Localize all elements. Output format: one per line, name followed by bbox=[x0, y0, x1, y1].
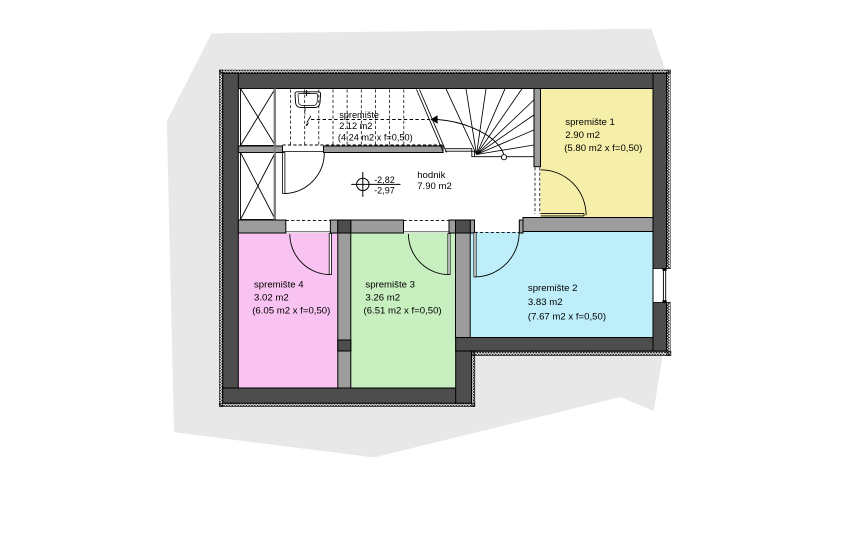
svg-text:(6.51 m2 x f=0,50): (6.51 m2 x f=0,50) bbox=[364, 305, 442, 316]
svg-text:(7.67 m2 x f=0,50): (7.67 m2 x f=0,50) bbox=[528, 311, 606, 322]
svg-text:-2,82: -2,82 bbox=[374, 175, 395, 185]
svg-text:2.90 m2: 2.90 m2 bbox=[565, 130, 600, 141]
svg-text:3.83 m2: 3.83 m2 bbox=[528, 297, 563, 308]
svg-text:(5.80 m2 x f=0,50): (5.80 m2 x f=0,50) bbox=[564, 143, 642, 154]
svg-text:spremište 4: spremište 4 bbox=[254, 279, 304, 290]
svg-text:-2,97: -2,97 bbox=[374, 186, 395, 196]
svg-text:3.26 m2: 3.26 m2 bbox=[365, 292, 400, 303]
svg-text:spremište 1: spremište 1 bbox=[565, 117, 615, 128]
svg-text:2.12 m2: 2.12 m2 bbox=[339, 121, 372, 131]
svg-text:3.02 m2: 3.02 m2 bbox=[254, 292, 289, 303]
svg-text:(6.05 m2 x f=0,50): (6.05 m2 x f=0,50) bbox=[252, 305, 330, 316]
svg-text:7.90 m2: 7.90 m2 bbox=[417, 181, 452, 192]
svg-text:spremište 2: spremište 2 bbox=[528, 283, 578, 294]
svg-text:spremište 3: spremište 3 bbox=[365, 279, 415, 290]
svg-text:spremište: spremište bbox=[339, 110, 379, 120]
svg-text:hodnik: hodnik bbox=[417, 170, 445, 181]
svg-text:(4.24 m2 x f=0,50): (4.24 m2 x f=0,50) bbox=[338, 133, 413, 143]
